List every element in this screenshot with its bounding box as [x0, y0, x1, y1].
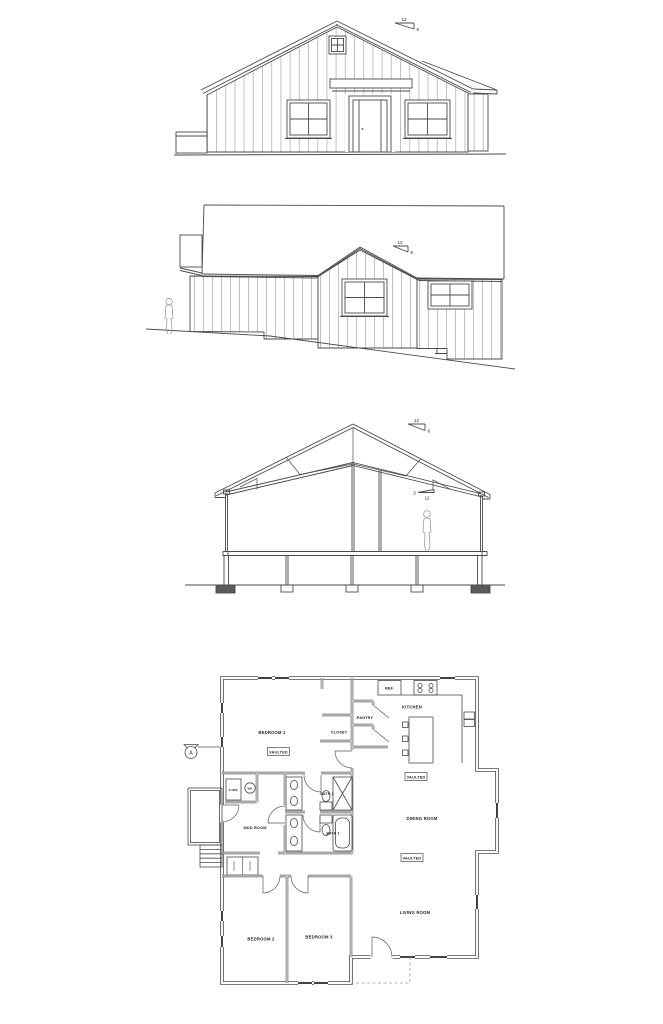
kitchen-sink [464, 712, 475, 727]
porch-roof-end [180, 235, 202, 276]
floor-plan-drawing: A BEDROOM 1 CLOSET PANTRY KITCHEN DINING… [175, 655, 510, 1000]
mudroom-hall-door [268, 806, 285, 823]
side-wing-window [428, 281, 472, 309]
side-elevation-svg: 12 6 [140, 195, 520, 380]
tag-vaulted-bedroom1: VAULTED [269, 750, 288, 754]
tag-ref: REF. [385, 687, 394, 691]
exterior-stairs [200, 845, 222, 867]
side-stoop [176, 132, 207, 153]
section-cut-marker: A [184, 745, 220, 759]
roof-pitch-marker: 12 6 [395, 17, 420, 32]
porch-dashed-outline [351, 957, 410, 983]
bath-fixtures [286, 777, 352, 851]
front-window-right [403, 100, 452, 139]
pitch-run: 6 [417, 27, 420, 32]
label-mud-room: MUD ROOM [243, 826, 266, 830]
bedroom2-door [263, 876, 280, 893]
front-elevation-svg: 12 6 [170, 8, 510, 168]
pitch-rise: 12 [414, 418, 420, 423]
pitch-rise: 12 [401, 17, 407, 22]
hall-closets [227, 857, 258, 875]
label-living-room: LIVING ROOM [400, 910, 431, 915]
shower [333, 777, 352, 810]
label-bath1: BATH 1 [320, 792, 333, 796]
label-kitchen: KITCHEN [402, 705, 422, 710]
person-figure [423, 511, 431, 551]
mudroom-exterior-door [222, 805, 239, 822]
side-wall-left [190, 276, 318, 339]
pitch-run: 6 [428, 429, 431, 434]
attic-window [329, 36, 346, 54]
building-section-drawing: 12 6 3 12 [180, 410, 510, 605]
front-window-left [285, 100, 332, 139]
drawing-sheet: 12 6 [0, 0, 663, 1024]
bedroom3-door [291, 876, 308, 893]
side-deck [188, 788, 222, 845]
label-pantry: PANTRY [357, 716, 374, 720]
island-stools [403, 722, 409, 756]
label-dining-room: DINING ROOM [406, 816, 437, 821]
bath1-door [304, 775, 321, 792]
floor-structure [223, 552, 487, 556]
doors [222, 705, 392, 957]
bedroom1-door [335, 751, 352, 768]
front-elevation-drawing: 12 6 [170, 8, 510, 168]
tag-furn: FURN. [229, 788, 239, 792]
pitch-run: 12 [424, 496, 430, 501]
building-section-svg: 12 6 3 12 [180, 410, 510, 605]
pitch-rise: 12 [397, 240, 403, 245]
pantry-angled-doors [373, 705, 389, 742]
front-entry-door [372, 937, 392, 957]
deck-and-stairs [188, 788, 222, 867]
side-elevation-drawing: 12 6 [140, 195, 520, 380]
right-wing-wall [468, 94, 488, 151]
interior-walls [352, 462, 381, 552]
ground-line [174, 154, 506, 155]
tag-vaulted-kitchen: VAULTED [407, 775, 426, 779]
tag-wh: WH [247, 786, 252, 790]
truss-top-chords [215, 424, 490, 498]
door-knob [362, 128, 364, 130]
label-bedroom2: BEDROOM 2 [247, 937, 275, 942]
label-closet: CLOSET [331, 731, 348, 735]
roof-pitch-marker: 12 6 [393, 240, 414, 255]
pitch-rise: 3 [413, 491, 416, 496]
label-bedroom1: BEDROOM 1 [258, 730, 286, 735]
side-gable-window [340, 279, 389, 317]
grade-steps [435, 349, 447, 354]
ceiling-pitch-marker: 3 12 [413, 490, 434, 501]
bath2-door [303, 815, 320, 832]
roof-pitch-marker: 12 6 [408, 418, 431, 434]
kitchen-island [409, 717, 433, 763]
person-figure [165, 298, 173, 334]
kitchen-fixtures [378, 681, 475, 764]
front-door [345, 94, 395, 152]
label-bedroom3: BEDROOM 3 [305, 935, 333, 940]
range [414, 681, 437, 696]
pitch-run: 6 [411, 250, 414, 255]
bath-vanities [286, 777, 302, 851]
eave-fascia [215, 493, 490, 499]
crawlspace-posts [281, 556, 423, 593]
floor-plan-svg: A BEDROOM 1 CLOSET PANTRY KITCHEN DINING… [175, 655, 510, 1000]
tag-vaulted-living: VAULTED [403, 856, 422, 860]
label-bath2: BATH 2 [326, 832, 339, 836]
